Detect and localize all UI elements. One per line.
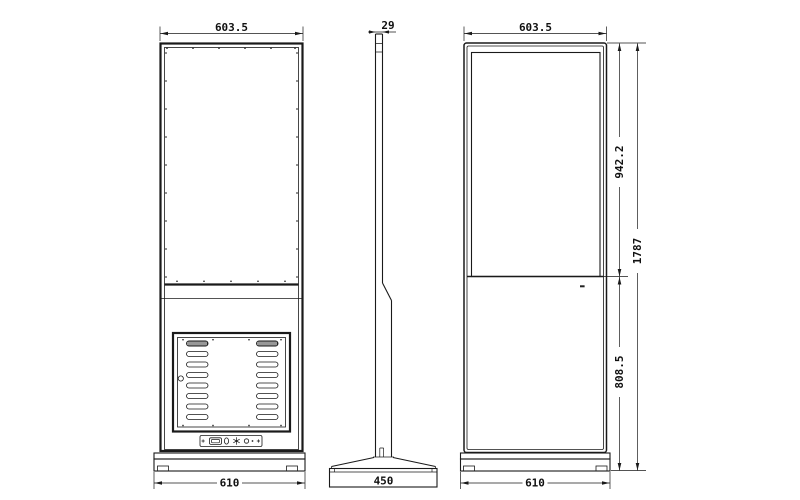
lower-section-height-dimension: 808.5 [613, 277, 627, 471]
fan-icon [233, 437, 239, 444]
screw-cross-icon [202, 439, 205, 442]
front-total-height-label: 1787 [631, 238, 644, 265]
back-cabinet-body [161, 44, 303, 452]
front-view-base-width-dimension: 610 [461, 472, 611, 490]
back-width-base-label: 610 [220, 477, 240, 490]
ir-sensor-mark [580, 285, 585, 287]
screw-cross-icon [257, 439, 260, 442]
led-dot-icon [252, 440, 254, 442]
front-screen-height-label: 942.2 [613, 145, 626, 178]
side-view: 29 450 [330, 19, 438, 488]
audio-port-icon [244, 439, 248, 443]
front-width-base-label: 610 [525, 477, 545, 490]
side-base-depth-label: 450 [374, 475, 394, 488]
side-base-foot: 450 [330, 457, 438, 488]
power-inlet-icon [224, 438, 228, 444]
front-view: 603.5 610 [461, 21, 647, 490]
front-lower-height-label: 808.5 [613, 355, 626, 388]
back-panel-screw-dots [165, 48, 297, 282]
side-view-thickness-dimension: 29 [368, 19, 396, 34]
side-panel-profile [376, 34, 392, 457]
side-thickness-label: 29 [381, 19, 394, 32]
front-width-top-label: 603.5 [519, 21, 552, 34]
io-connector-panel [200, 436, 262, 447]
vent-grille-left-column [187, 341, 209, 420]
total-height-dimension: 1787 [631, 44, 645, 471]
back-access-door [173, 333, 290, 432]
back-base-pedestal [154, 453, 305, 471]
front-view-top-width-dimension: 603.5 [464, 21, 607, 41]
kiosk-three-view-drawing: 603.5 [0, 0, 800, 500]
back-view-base-width-dimension: 610 [154, 472, 305, 490]
door-lock[interactable] [178, 376, 183, 381]
technical-drawing-canvas: 603.5 [0, 0, 800, 500]
front-cabinet-body [464, 43, 607, 453]
back-view: 603.5 [154, 21, 305, 490]
vent-grille-right-column [257, 341, 279, 420]
front-view-height-dimensions: 942.2 808.5 1787 [604, 43, 647, 471]
back-view-top-width-dimension: 603.5 [160, 21, 303, 41]
front-base-pedestal [461, 453, 611, 471]
back-width-top-label: 603.5 [215, 21, 248, 34]
screen-opening [472, 53, 601, 277]
screen-section-height-dimension: 942.2 [613, 44, 627, 277]
